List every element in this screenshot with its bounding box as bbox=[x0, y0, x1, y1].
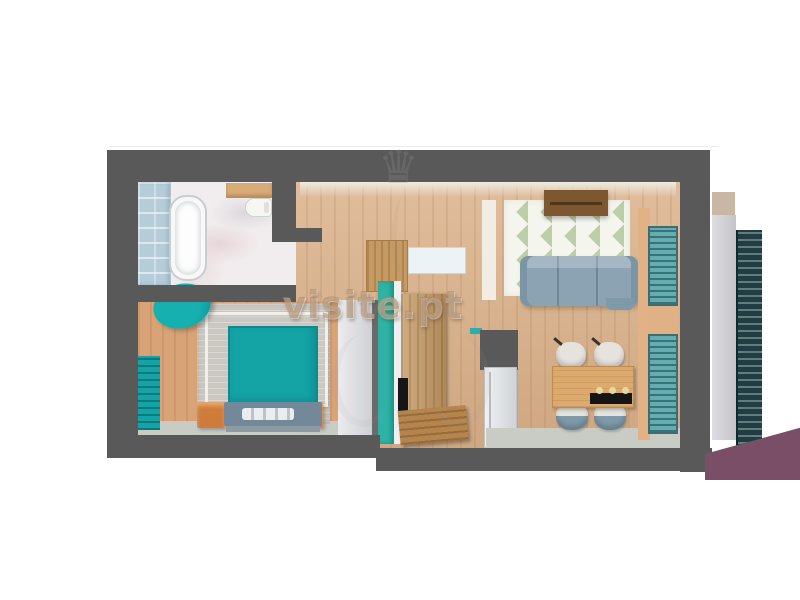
watermark-text: visite.pt bbox=[282, 283, 463, 327]
balcony-wall bbox=[712, 215, 736, 440]
bed bbox=[224, 326, 322, 432]
bathroom-wall-bottom bbox=[138, 285, 296, 302]
wall-bottom-left bbox=[107, 435, 380, 458]
bed-base bbox=[226, 426, 320, 432]
balcony-railing bbox=[736, 230, 762, 458]
radiator bbox=[138, 356, 160, 430]
dining-chair bbox=[556, 342, 586, 368]
awning-notch bbox=[712, 192, 735, 215]
bathroom-doorway-floor bbox=[272, 242, 296, 285]
wall-right bbox=[680, 150, 710, 472]
nightstand-left bbox=[197, 402, 225, 428]
top-wall-inner-face bbox=[300, 182, 676, 197]
window-gap bbox=[648, 306, 678, 334]
window-blind-upper bbox=[648, 226, 678, 306]
wall-left bbox=[107, 150, 138, 458]
wardrobe-niche bbox=[398, 378, 408, 412]
floorplan-scene: ♛ visite.pt bbox=[0, 0, 800, 600]
wall-bottom-right bbox=[376, 448, 712, 471]
bathtub-basin bbox=[175, 201, 201, 275]
sofa-chaise bbox=[606, 298, 634, 310]
dining-chair bbox=[594, 342, 624, 368]
tv-sideboard bbox=[544, 190, 608, 216]
bathroom-shelf bbox=[226, 183, 272, 198]
serving-tray bbox=[590, 393, 632, 404]
bathroom-wall-right bbox=[272, 182, 296, 242]
kitchen-counter bbox=[408, 247, 466, 274]
watermark-flourish bbox=[392, 198, 413, 276]
watermark-flourish bbox=[428, 335, 490, 427]
bed-pillow-headboard bbox=[224, 402, 322, 426]
bed-duvet bbox=[228, 326, 318, 406]
shower-tiles bbox=[138, 182, 171, 285]
watermark-flourish bbox=[332, 335, 394, 427]
window-blind-lower bbox=[648, 334, 678, 434]
bathroom-wall-stub bbox=[296, 228, 322, 242]
toilet bbox=[245, 198, 272, 217]
bathtub bbox=[169, 195, 207, 281]
watermark-crown-icon: ♛ bbox=[378, 144, 419, 190]
living-wall-face bbox=[482, 200, 496, 300]
